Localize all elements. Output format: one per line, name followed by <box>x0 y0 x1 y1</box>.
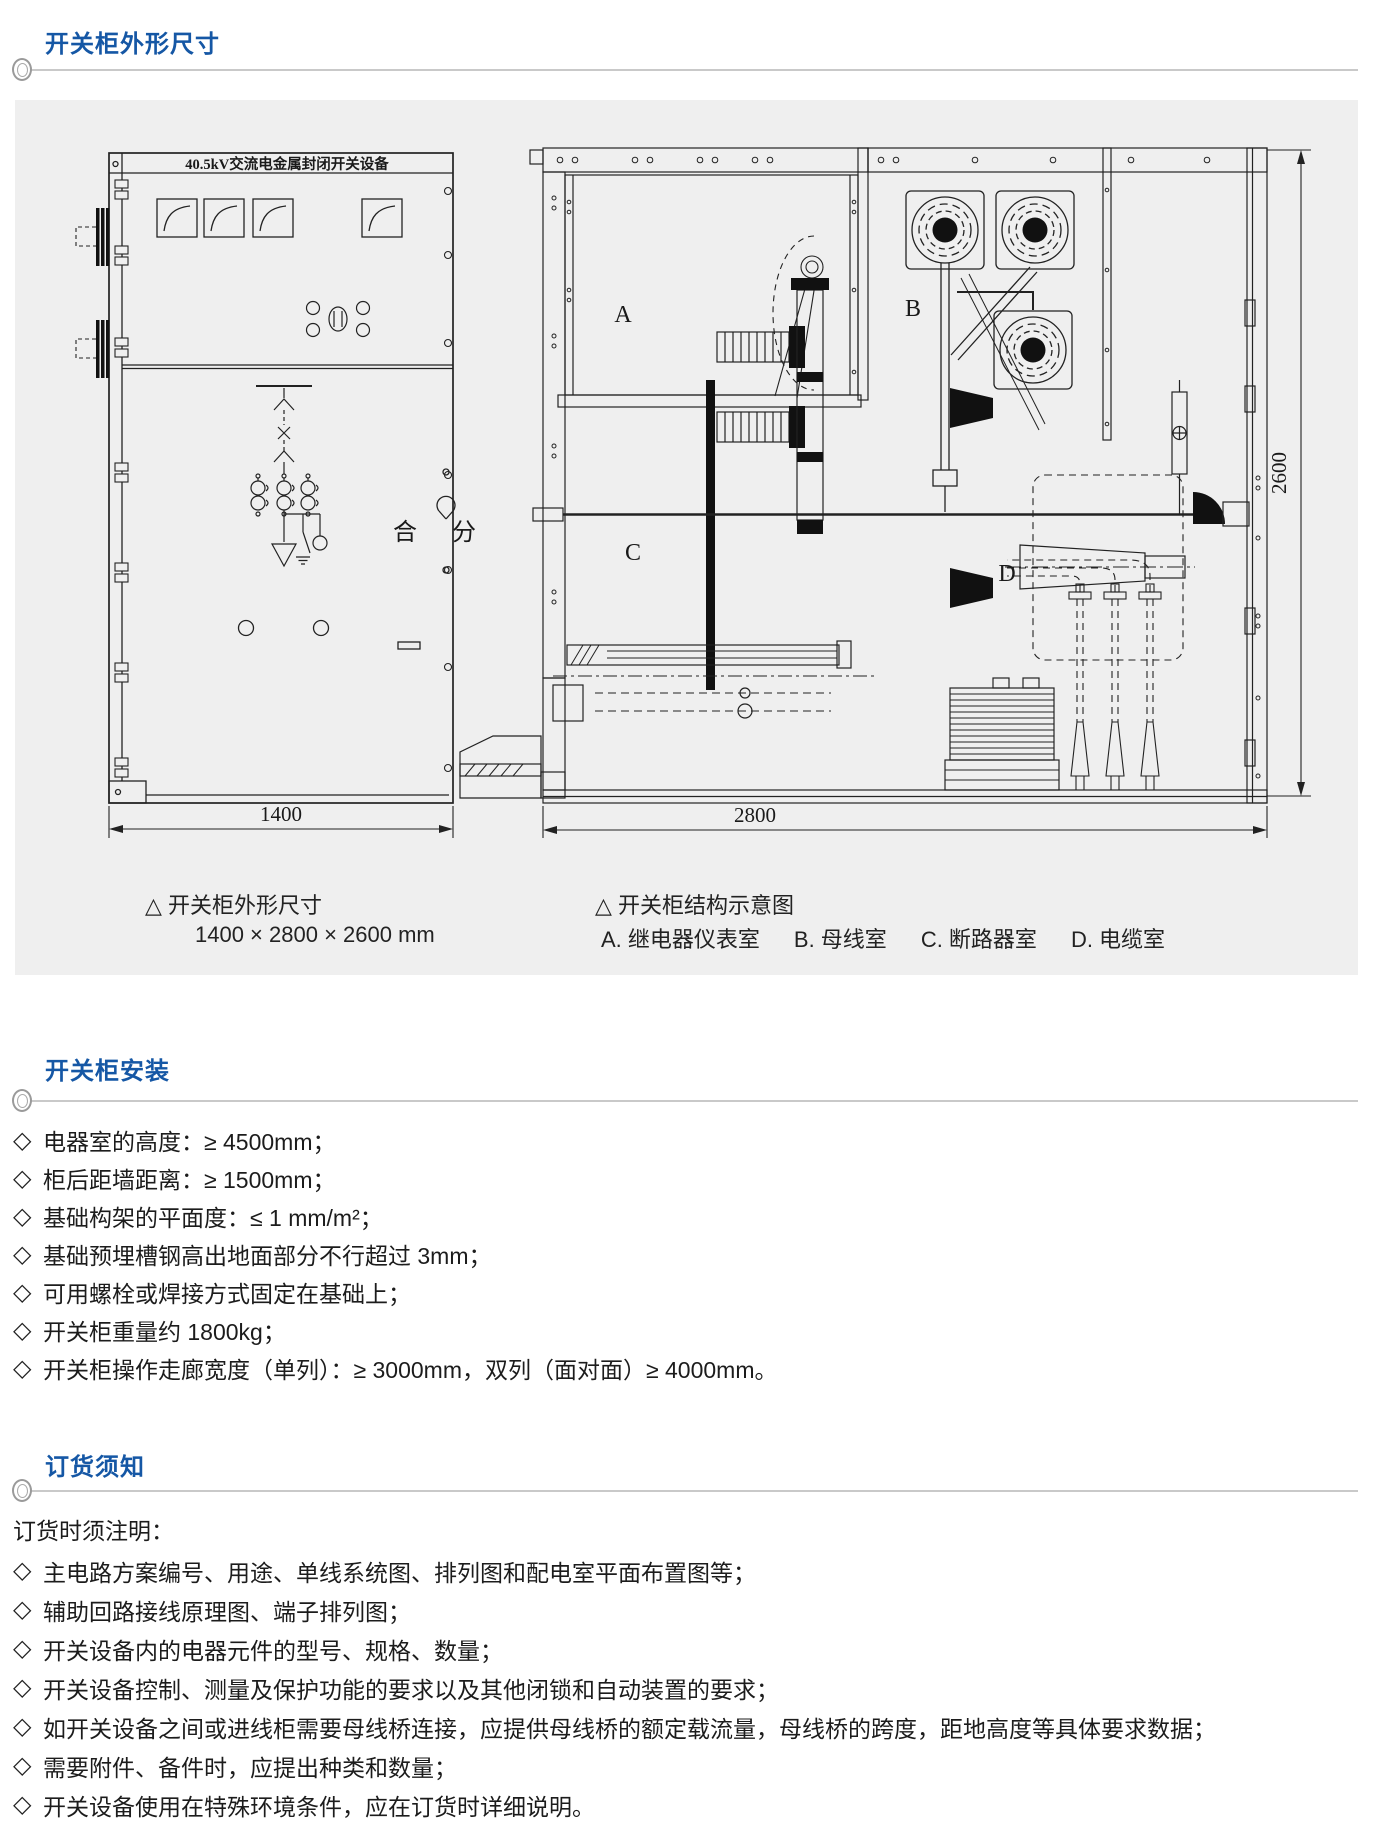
side-view-drawing: A B C D 2800 2600 <box>445 140 1325 840</box>
list-item: ◇可用螺栓或焊接方式固定在基础上； <box>13 1273 1363 1311</box>
compartment-b-label: B <box>905 296 921 322</box>
diamond-bullet-icon: ◇ <box>13 1634 43 1663</box>
section-ring-icon <box>12 1479 32 1502</box>
list-item: ◇柜后距墙距离：≥ 1500mm； <box>13 1159 1363 1197</box>
list-item-text: 基础预埋槽钢高出地面部分不行超过 3mm； <box>43 1237 492 1271</box>
list-item: ◇如开关设备之间或进线柜需要母线桥连接，应提供母线桥的额定载流量，母线桥的跨度，… <box>13 1707 1363 1746</box>
list-item: ◇主电路方案编号、用途、单线系统图、排列图和配电室平面布置图等； <box>13 1551 1363 1590</box>
width-dimension-label: 1400 <box>260 802 302 826</box>
compartment-d-label: D <box>998 561 1015 587</box>
ordering-intro: 订货时须注明： <box>13 1512 174 1546</box>
dimension-2800 <box>543 806 1267 838</box>
diamond-bullet-icon: ◇ <box>13 1240 43 1269</box>
height-dimension-label: 2600 <box>1267 452 1291 494</box>
compartment-c-label: C <box>625 540 641 566</box>
list-item-text: 需要附件、备件时，应提出种类和数量； <box>43 1749 457 1783</box>
list-item-text: 电器室的高度：≥ 4500mm； <box>43 1123 336 1157</box>
compartment-legend: A. 继电器仪表室 B. 母线室 C. 断路器室 D. 电缆室 <box>601 922 1165 954</box>
front-view-drawing: 合 分 40.5kV交流电金属封闭开关设备 <box>65 140 485 840</box>
diamond-bullet-icon: ◇ <box>13 1316 43 1345</box>
legend-item: A. 继电器仪表室 <box>601 922 760 954</box>
side-view-caption: △ 开关柜结构示意图 <box>595 888 794 920</box>
list-item-text: 开关设备内的电器元件的型号、规格、数量； <box>43 1632 503 1666</box>
diamond-bullet-icon: ◇ <box>13 1556 43 1585</box>
side-terminal-blocks <box>76 208 110 378</box>
diamond-bullet-icon: ◇ <box>13 1202 43 1231</box>
busbar-coils <box>906 191 1074 512</box>
drive-rod <box>533 492 1249 526</box>
diamond-bullet-icon: ◇ <box>13 1354 43 1383</box>
list-item-text: 可用螺栓或焊接方式固定在基础上； <box>43 1275 411 1309</box>
close-label: 合 <box>393 519 417 546</box>
buttons-and-handle <box>239 621 421 650</box>
list-item-text: 如开关设备之间或进线柜需要母线桥连接，应提供母线桥的额定载流量，母线桥的跨度，距… <box>43 1710 1216 1744</box>
earthing-mechanism <box>1172 380 1187 514</box>
cable-terminations <box>1007 475 1183 790</box>
installation-list: ◇电器室的高度：≥ 4500mm； ◇柜后距墙距离：≥ 1500mm； ◇基础构… <box>13 1121 1363 1387</box>
mimic-diagram <box>251 386 327 566</box>
drawing-panel: 合 分 40.5kV交流电金属封闭开关设备 <box>15 100 1358 975</box>
front-foot <box>460 736 565 798</box>
diamond-bullet-icon: ◇ <box>13 1164 43 1193</box>
list-item-text: 开关设备控制、测量及保护功能的要求以及其他闭锁和自动装置的要求； <box>43 1671 779 1705</box>
section-ring-icon <box>12 58 32 81</box>
ordering-list: ◇主电路方案编号、用途、单线系统图、排列图和配电室平面布置图等； ◇辅助回路接线… <box>13 1551 1363 1824</box>
diamond-bullet-icon: ◇ <box>13 1595 43 1624</box>
indicator-lamps <box>307 302 370 337</box>
meter-icons <box>157 199 402 237</box>
list-item: ◇基础构架的平面度：≤ 1 mm/m²； <box>13 1197 1363 1235</box>
diamond-bullet-icon: ◇ <box>13 1673 43 1702</box>
diamond-bullet-icon: ◇ <box>13 1126 43 1155</box>
list-item-text: 主电路方案编号、用途、单线系统图、排列图和配电室平面布置图等； <box>43 1554 756 1588</box>
section-ring-icon <box>12 1089 32 1112</box>
diamond-bullet-icon: ◇ <box>13 1751 43 1780</box>
diamond-bullet-icon: ◇ <box>13 1278 43 1307</box>
list-item: ◇开关设备使用在特殊环境条件，应在订货时详细说明。 <box>13 1785 1363 1824</box>
list-item: ◇电器室的高度：≥ 4500mm； <box>13 1121 1363 1159</box>
list-item: ◇开关设备控制、测量及保护功能的要求以及其他闭锁和自动装置的要求； <box>13 1668 1363 1707</box>
voltage-transformer-bellows <box>945 678 1059 790</box>
depth-dimension-label: 2800 <box>734 803 776 827</box>
list-item: ◇需要附件、备件时，应提出种类和数量； <box>13 1746 1363 1785</box>
section-title-ordering: 订货须知 <box>45 1447 145 1482</box>
front-view-caption-dimensions: 1400 × 2800 × 2600 mm <box>195 922 435 948</box>
section-divider <box>30 69 1358 71</box>
list-item-text: 开关设备使用在特殊环境条件，应在订货时详细说明。 <box>43 1788 595 1822</box>
section-title-dimensions: 开关柜外形尺寸 <box>45 24 220 59</box>
compartment-a-label: A <box>614 302 632 328</box>
list-item-text: 基础构架的平面度：≤ 1 mm/m²； <box>43 1199 383 1233</box>
diamond-bullet-icon: ◇ <box>13 1790 43 1819</box>
list-item-text: 开关柜操作走廊宽度（单列）：≥ 3000mm，双列（面对面）≥ 4000mm。 <box>43 1351 778 1385</box>
list-item-text: 辅助回路接线原理图、端子排列图； <box>43 1593 411 1627</box>
section-divider <box>30 1100 1358 1102</box>
catalog-page: 开关柜外形尺寸 <box>0 0 1373 1848</box>
diamond-bullet-icon: ◇ <box>13 1712 43 1741</box>
legend-item: D. 电缆室 <box>1071 922 1165 954</box>
cabinet-outline <box>109 153 453 803</box>
legend-item: C. 断路器室 <box>921 922 1037 954</box>
legend-item: B. 母线室 <box>794 922 887 954</box>
list-item: ◇开关柜操作走廊宽度（单列）：≥ 3000mm，双列（面对面）≥ 4000mm。 <box>13 1349 1363 1387</box>
section-divider <box>30 1490 1358 1492</box>
list-item-text: 柜后距墙距离：≥ 1500mm； <box>43 1161 336 1195</box>
list-item-text: 开关柜重量约 1800kg； <box>43 1313 286 1347</box>
section-title-installation: 开关柜安装 <box>45 1051 170 1086</box>
list-item: ◇开关设备内的电器元件的型号、规格、数量； <box>13 1629 1363 1668</box>
cabinet-title: 40.5kV交流电金属封闭开关设备 <box>185 155 389 173</box>
list-item: ◇辅助回路接线原理图、端子排列图； <box>13 1590 1363 1629</box>
list-item: ◇基础预埋槽钢高出地面部分不行超过 3mm； <box>13 1235 1363 1273</box>
list-item: ◇开关柜重量约 1800kg； <box>13 1311 1363 1349</box>
front-view-caption: △ 开关柜外形尺寸 <box>145 888 322 920</box>
